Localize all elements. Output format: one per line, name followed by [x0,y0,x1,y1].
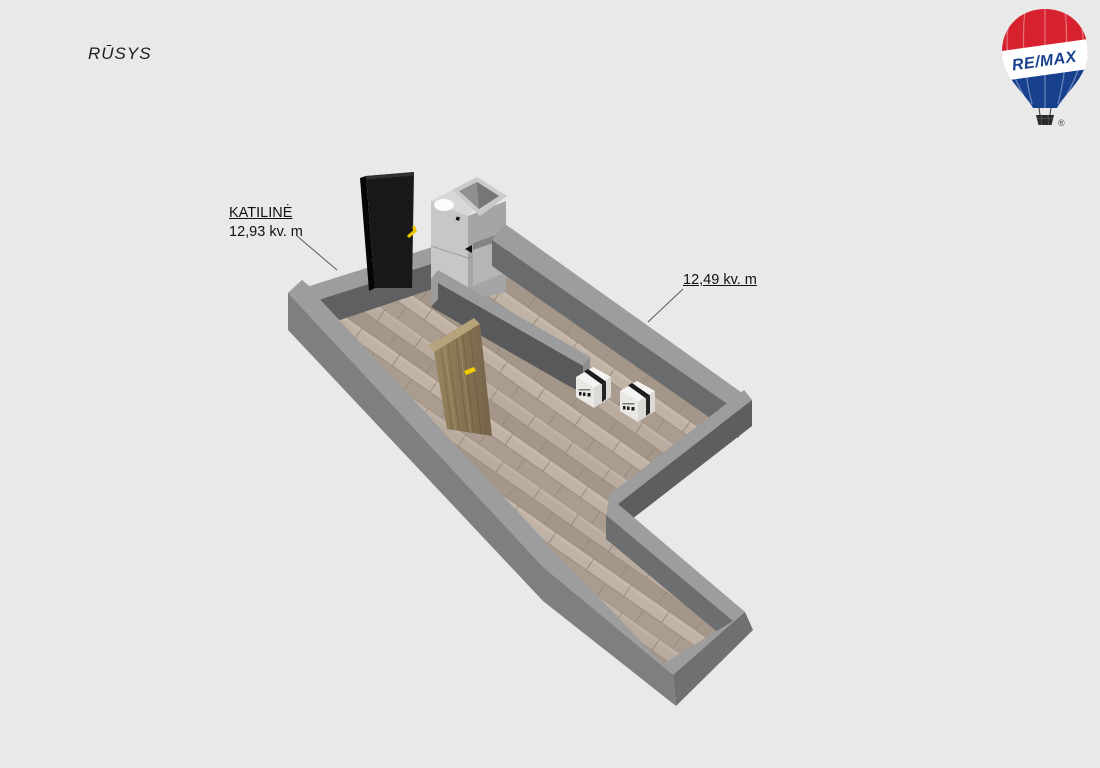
leader-line-mainroom [648,289,683,322]
floor-plan-stage: RE/MAX ® [0,0,1100,768]
page-title: RŪSYS [88,44,152,64]
boiler-burner [434,199,454,211]
entrance-door [360,172,415,291]
leader-line-katiline [297,236,337,270]
page: { "page": {"background_color": "#e9e9e9"… [0,0,1100,768]
remax-logo: RE/MAX ® [995,6,1095,136]
room-label-katiline: KATILINĖ 12,93 kv. m [229,204,303,242]
balloon-basket [1036,115,1054,125]
room-area: 12,93 kv. m [229,223,303,242]
room-area: 12,49 kv. m [683,271,757,290]
room-name: KATILINĖ [229,204,303,223]
registered-mark: ® [1058,118,1065,128]
floor-plan-drawing: RE/MAX ® [0,0,1100,768]
room-label-mainroom: 12,49 kv. m [683,271,757,290]
